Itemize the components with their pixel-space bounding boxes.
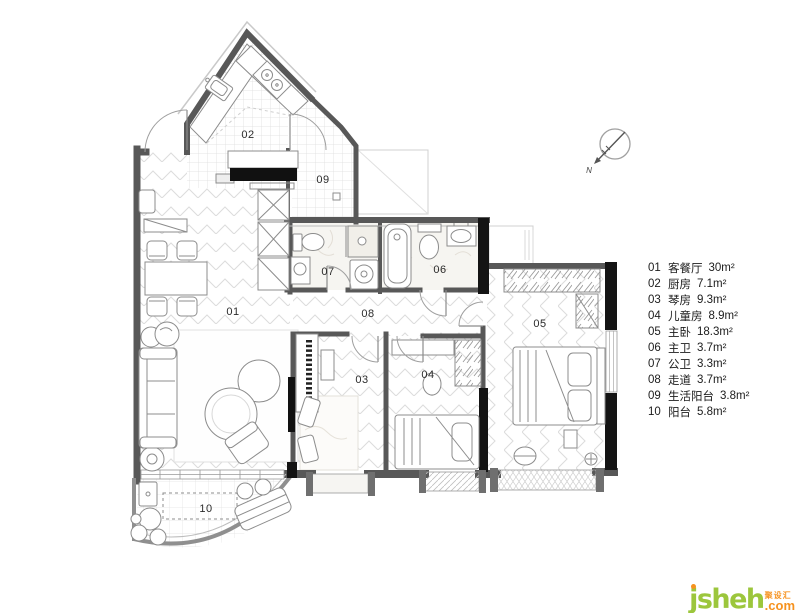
room-label-07: 07 xyxy=(321,266,334,278)
legend-area: 3.8m² xyxy=(720,390,749,402)
legend-area: 3.7m² xyxy=(697,374,726,386)
legend-area: 7.1m² xyxy=(697,278,726,290)
legend-item: 10阳台5.8m² xyxy=(648,404,800,420)
legend-item: 07公卫3.3m² xyxy=(648,356,800,372)
wardrobe xyxy=(455,340,481,386)
legend-room-name: 生活阳台 xyxy=(668,388,714,404)
legend-item: 04儿童房8.9m² xyxy=(648,308,800,324)
legend-area: 30m² xyxy=(709,262,735,274)
legend-num: 08 xyxy=(648,374,668,386)
room-label-10: 10 xyxy=(199,503,212,515)
legend-num: 03 xyxy=(648,294,668,306)
room-label-09: 09 xyxy=(316,174,329,186)
legend-area: 9.3m² xyxy=(697,294,726,306)
legend-area: 8.9m² xyxy=(709,310,738,322)
legend-num: 05 xyxy=(648,326,668,338)
room-label-03: 03 xyxy=(355,374,368,386)
shoe-cabinet xyxy=(139,190,155,213)
tv xyxy=(288,377,295,432)
legend-room-name: 琴房 xyxy=(668,292,691,308)
legend-item: 05主卧18.3m² xyxy=(648,324,800,340)
legend-room-name: 客餐厅 xyxy=(668,260,703,276)
logo-domain-suffix: .com xyxy=(765,600,795,611)
area-legend: 01客餐厅30m² 02厨房7.1m² 03琴房9.3m² 04儿童房8.9m²… xyxy=(648,260,800,420)
room-label-02: 02 xyxy=(241,129,254,141)
legend-item: 09生活阳台3.8m² xyxy=(648,388,800,404)
compass-circle xyxy=(600,129,630,159)
room-label-08: 08 xyxy=(361,308,374,320)
legend-item: 08走道3.7m² xyxy=(648,372,800,388)
legend-room-name: 走道 xyxy=(668,372,691,388)
floorplan-page: 01 02 03 04 05 06 07 08 09 10 N 01客餐厅30m… xyxy=(0,0,800,613)
legend-room-name: 主卫 xyxy=(668,340,691,356)
sofa xyxy=(139,348,177,448)
logo-rest: sheh xyxy=(697,584,764,613)
legend-room-name: 公卫 xyxy=(668,356,691,372)
tall-cabinets xyxy=(258,190,289,290)
north-label: N xyxy=(586,166,592,175)
legend-area: 18.3m² xyxy=(697,326,733,338)
legend-area: 3.3m² xyxy=(697,358,726,370)
legend-room-name: 儿童房 xyxy=(668,308,703,324)
legend-room-name: 厨房 xyxy=(668,276,691,292)
legend-room-name: 阳台 xyxy=(668,404,691,420)
legend-item: 01客餐厅30m² xyxy=(648,260,800,276)
kitchen-bar-counter xyxy=(230,168,297,181)
legend-item: 06主卫3.7m² xyxy=(648,340,800,356)
legend-num: 01 xyxy=(648,262,668,274)
room-label-01: 01 xyxy=(226,306,239,318)
legend-num: 02 xyxy=(648,278,668,290)
kitchen-island xyxy=(228,151,298,168)
toilet xyxy=(420,235,439,259)
toilet xyxy=(302,234,324,251)
legend-item: 03琴房9.3m² xyxy=(648,292,800,308)
legend-num: 09 xyxy=(648,390,668,402)
site-logo: jsheh 聚设汇 .com xyxy=(689,589,795,611)
north-compass: N xyxy=(586,129,630,175)
legend-area: 5.8m² xyxy=(697,406,726,418)
legend-area: 3.7m² xyxy=(697,342,726,354)
bay-windows xyxy=(306,468,604,496)
legend-num: 04 xyxy=(648,310,668,322)
floor-drain xyxy=(333,193,340,200)
room-label-04: 04 xyxy=(421,369,434,381)
legend-num: 10 xyxy=(648,406,668,418)
legend-num: 07 xyxy=(648,358,668,370)
legend-num: 06 xyxy=(648,342,668,354)
room-label-06: 06 xyxy=(433,264,446,276)
dining-table xyxy=(145,262,207,295)
logo-j: j xyxy=(689,584,697,613)
room-label-05: 05 xyxy=(533,318,546,330)
wardrobe xyxy=(504,269,600,292)
legend-room-name: 主卧 xyxy=(668,324,691,340)
legend-item: 02厨房7.1m² xyxy=(648,276,800,292)
logo-brand-text: jsheh xyxy=(689,589,764,611)
